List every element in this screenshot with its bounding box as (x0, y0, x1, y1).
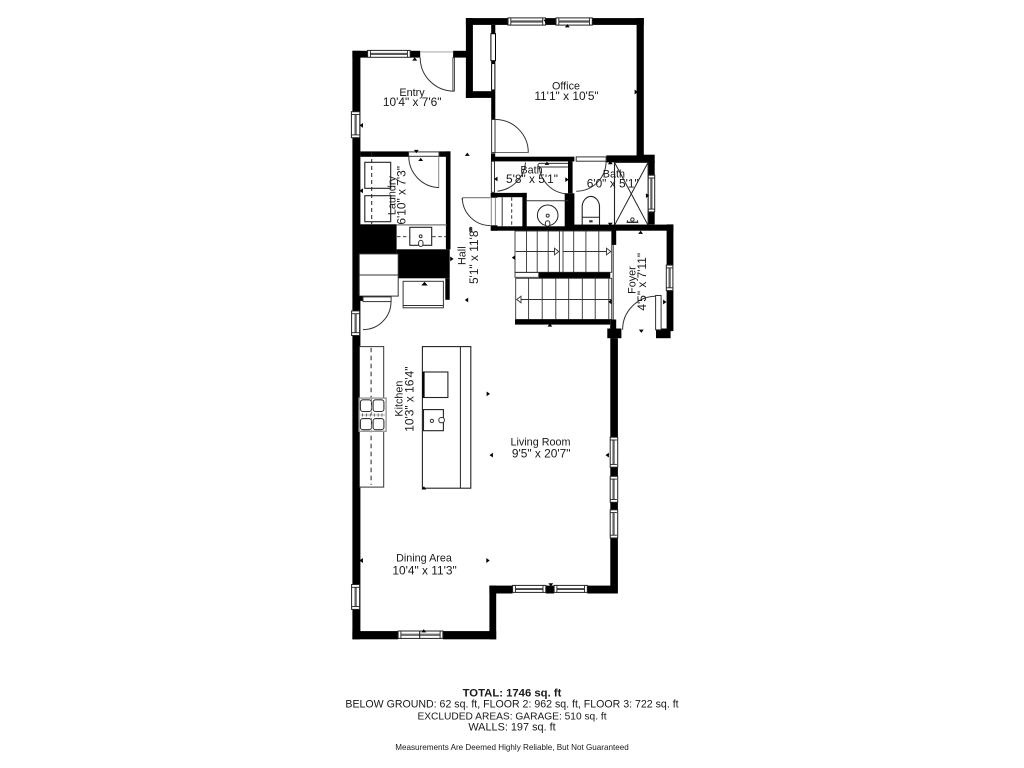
svg-text:9'5" x 20'7": 9'5" x 20'7" (512, 447, 571, 461)
svg-text:4'5" x 7'11": 4'5" x 7'11" (635, 253, 649, 311)
svg-text:WALLS: 197 sq. ft: WALLS: 197 sq. ft (468, 721, 555, 733)
svg-text:Measurements Are Deemed Highly: Measurements Are Deemed Highly Reliable,… (395, 743, 629, 752)
svg-text:11'1" x 10'5": 11'1" x 10'5" (534, 89, 598, 103)
svg-text:6'10" x 7'3": 6'10" x 7'3" (395, 166, 409, 225)
svg-text:6'0" x 5'1": 6'0" x 5'1" (587, 177, 639, 191)
svg-text:10'4" x 7'6": 10'4" x 7'6" (383, 95, 442, 109)
svg-text:5'8" x 5'1": 5'8" x 5'1" (506, 172, 558, 186)
svg-text:5'1" x 11'8": 5'1" x 11'8" (467, 226, 481, 284)
svg-text:10'4" x 11'3": 10'4" x 11'3" (392, 563, 456, 577)
svg-text:BELOW GROUND: 62 sq. ft, FLOOR: BELOW GROUND: 62 sq. ft, FLOOR 2: 962 sq… (345, 699, 678, 711)
svg-text:10'3" x 16'4": 10'3" x 16'4" (403, 366, 417, 431)
